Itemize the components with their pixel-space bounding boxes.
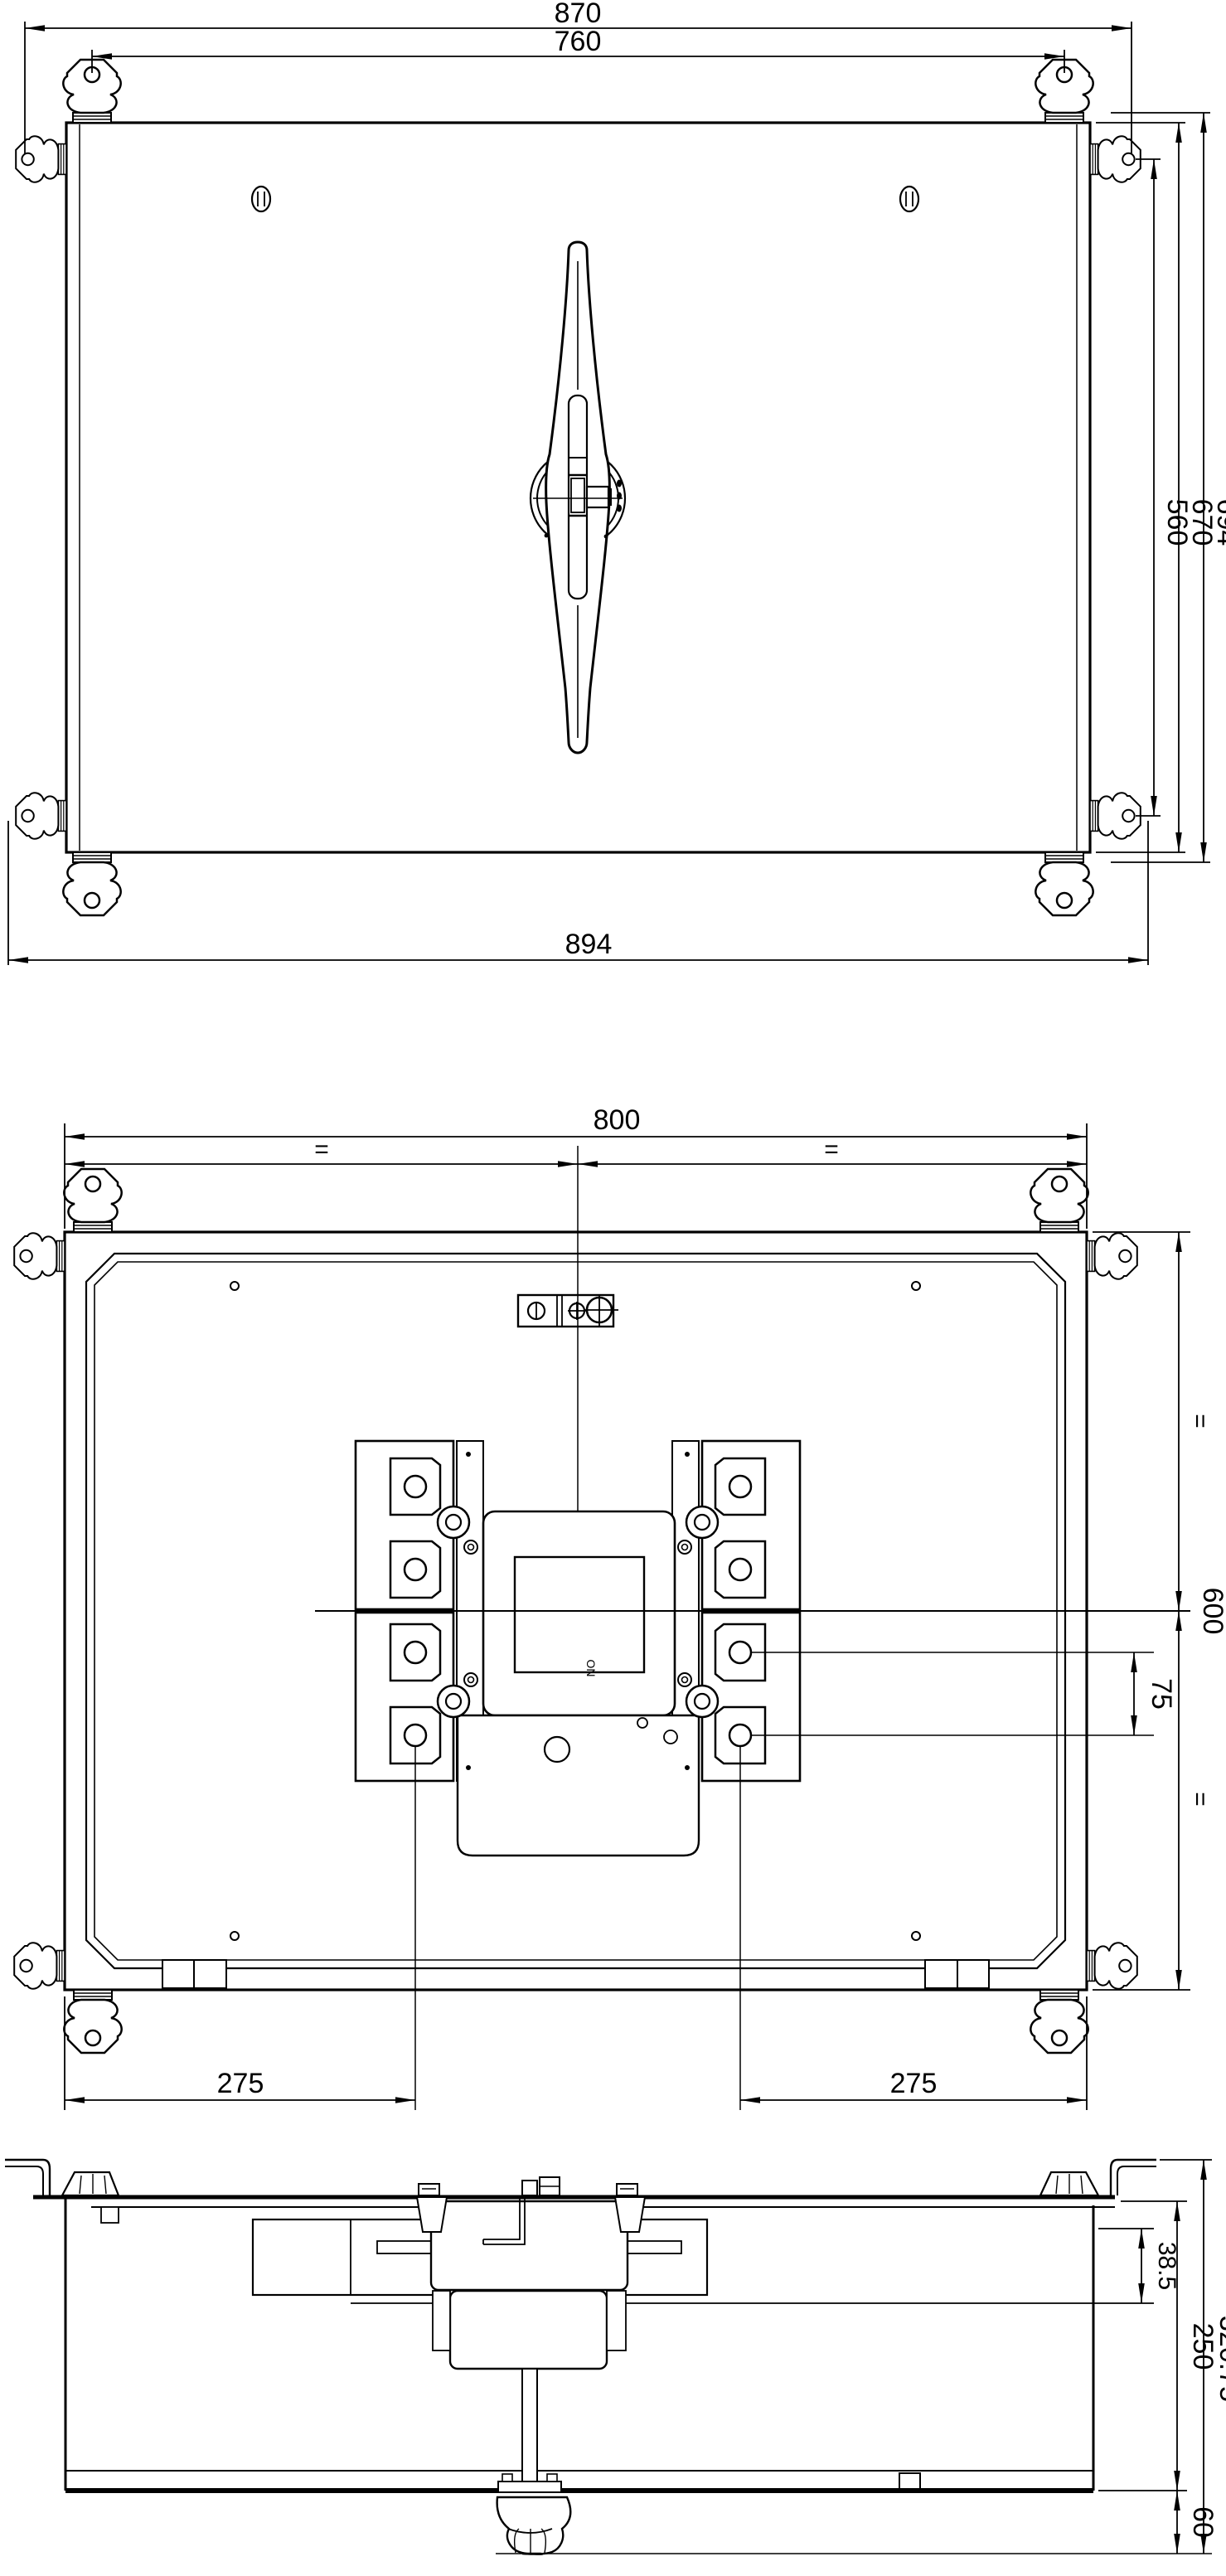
clip-left [5,2160,119,2195]
side-step-right [607,2291,626,2350]
small-screw [464,1673,477,1686]
dim-60-label: 60 [1187,2506,1219,2538]
rivet-dot [685,1452,690,1457]
dim-275-right-label: 275 [890,2068,938,2099]
bracket-right-lower [1090,793,1141,838]
handle-latch-tab [587,487,608,507]
panel-screw-left [252,187,270,211]
rear-bracket-top-left [64,1169,121,1232]
small-screw [464,1540,477,1554]
rear-screw [230,1932,239,1940]
mount-bolt [686,1686,718,1717]
clamp-bolt-right [615,2184,645,2232]
dim-560-label: 560 [1161,499,1193,546]
switch-body-upper [431,2201,628,2290]
boss-detail-hole [617,480,622,488]
boss-detail-hole [617,492,622,500]
foot-bolt [502,2474,512,2481]
dim-760-label: 760 [555,26,602,57]
foot-bolt [547,2474,557,2481]
clamp-bolt-left [417,2184,447,2232]
dim-38.5-label: 38.5 [1153,2242,1180,2290]
rear-bracket-left-upper [14,1233,65,1278]
rear-bracket-top-right [1030,1169,1088,1232]
shaft-foot [498,2481,561,2492]
terminal-pad [390,1541,440,1598]
side-view: 38.5 250 320.75 60 [5,2160,1226,2554]
rear-bracket-bottom-left [64,1990,121,2053]
boss-dot [545,534,549,538]
mount-bolt [438,1506,469,1538]
side-step-left [433,2291,450,2350]
drawing-page: 870 760 894 694 670 560 [0,0,1226,2576]
equal-mark-right: = [824,1136,839,1163]
panel-screw-right [900,187,918,211]
drain-hole [545,1737,569,1762]
bottom-foot-block [899,2473,920,2489]
rivet-dot [466,1452,471,1457]
rear-bracket-left-lower [14,1943,65,1988]
terminal-pad [390,1458,440,1515]
boss-dot [604,535,608,539]
dim-75-label: 75 [1146,1678,1177,1710]
bottom-knob [496,2497,1212,2554]
clip-right [1040,2160,1156,2195]
rear-bracket-right-lower [1087,1943,1137,1988]
center-bolt-pair [522,2177,560,2195]
boss-detail-hole [617,505,622,512]
rear-view: ON 800 = = 600 [14,1104,1226,2110]
small-screw [678,1540,691,1554]
dim-894-label: 894 [565,929,613,960]
equal-mark-bottom: = [1186,1792,1214,1807]
rear-screw [230,1282,239,1290]
technical-drawing: 870 760 894 694 670 560 [0,0,1226,2576]
bracket-right-upper [1090,136,1141,182]
rear-screw [912,1282,920,1290]
front-view: 870 760 894 694 670 560 [8,0,1226,965]
dim-275-left-label: 275 [217,2068,264,2099]
mechanism [253,2177,1154,2492]
slot-slider-block [571,478,584,512]
tiny-screw [664,1730,677,1744]
terminal-pad [715,1541,765,1598]
rivet-dot [685,1765,690,1770]
tiny-screw [637,1718,647,1728]
rear-bracket-right-upper [1087,1233,1137,1278]
dim-600-label: 600 [1197,1588,1226,1635]
mount-bolt [438,1686,469,1717]
terminal-pad [715,1458,765,1515]
neutral-terminal-block [518,1294,618,1327]
equal-mark-left: = [314,1136,329,1163]
equal-mark-top: = [1186,1414,1214,1429]
terminal-pad [390,1624,440,1681]
bracket-bottom-left [63,852,120,915]
drive-shaft [522,2369,537,2483]
rear-bracket-bottom-right [1030,1990,1088,2053]
bracket-left-upper [16,136,66,182]
bracket-bottom-right [1035,852,1093,915]
dim-870-label: 870 [555,0,602,29]
bracket-left-lower [16,793,66,838]
mount-bolt [686,1506,718,1538]
rear-screw [912,1932,920,1940]
dim-320.75-label: 320.75 [1214,2316,1226,2402]
small-screw [678,1673,691,1686]
on-position-label: ON [584,1660,598,1677]
plate-tab [101,2207,119,2223]
rivet-dot [466,1765,471,1770]
switch-body-lower [450,2291,607,2369]
shaft-window [515,1557,644,1672]
dim-800-label: 800 [594,1104,641,1136]
lower-plate [458,1715,699,1856]
